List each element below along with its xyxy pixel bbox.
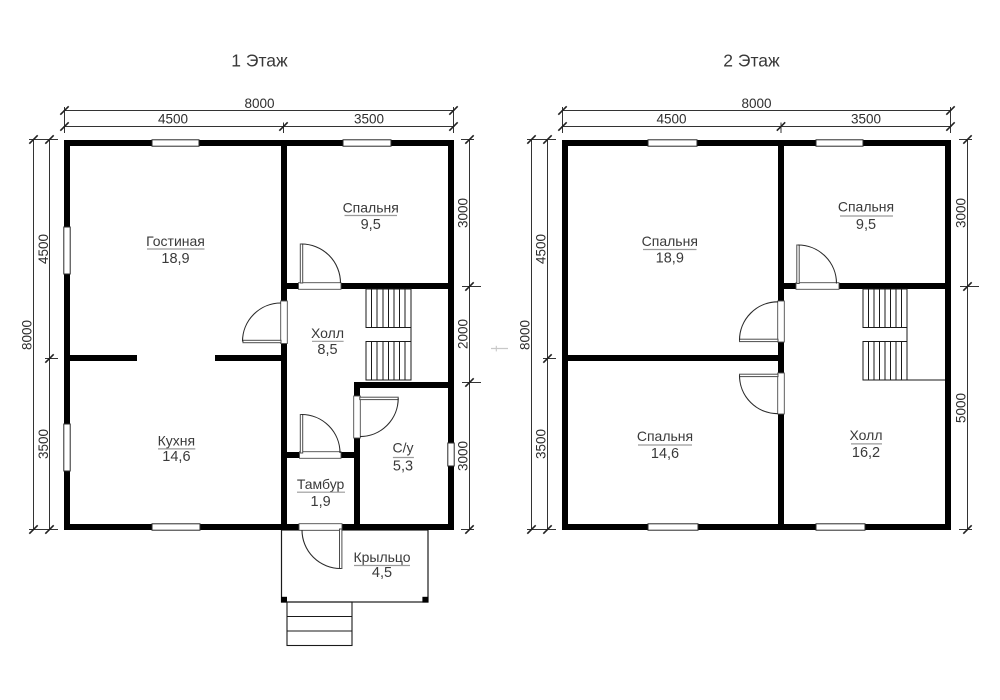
svg-text:5,3: 5,3 bbox=[393, 458, 413, 474]
svg-text:3500: 3500 bbox=[534, 429, 549, 459]
svg-text:1,9: 1,9 bbox=[311, 494, 331, 510]
svg-text:Холл: Холл bbox=[311, 325, 344, 341]
svg-text:3500: 3500 bbox=[354, 112, 384, 127]
svg-text:Спальня: Спальня bbox=[637, 428, 693, 444]
svg-text:14,6: 14,6 bbox=[651, 446, 679, 462]
svg-text:4500: 4500 bbox=[36, 234, 51, 264]
svg-text:3500: 3500 bbox=[851, 112, 881, 127]
svg-text:16,2: 16,2 bbox=[852, 445, 880, 461]
svg-text:2000: 2000 bbox=[456, 319, 471, 349]
svg-text:4500: 4500 bbox=[534, 234, 549, 264]
svg-text:9,5: 9,5 bbox=[361, 217, 381, 233]
svg-text:18,9: 18,9 bbox=[161, 251, 189, 267]
svg-text:3000: 3000 bbox=[456, 198, 471, 228]
svg-text:Гостиная: Гостиная bbox=[146, 233, 205, 249]
svg-text:1 Этаж: 1 Этаж bbox=[231, 51, 288, 71]
svg-text:4500: 4500 bbox=[158, 112, 188, 127]
svg-text:8000: 8000 bbox=[518, 320, 533, 350]
svg-text:18,9: 18,9 bbox=[656, 251, 684, 267]
svg-text:3500: 3500 bbox=[36, 429, 51, 459]
svg-text:С/у: С/у bbox=[393, 439, 414, 455]
svg-text:Холл: Холл bbox=[850, 427, 883, 443]
svg-text:4500: 4500 bbox=[656, 112, 686, 127]
svg-text:8000: 8000 bbox=[741, 96, 771, 111]
svg-text:9,5: 9,5 bbox=[856, 217, 876, 233]
svg-text:8,5: 8,5 bbox=[317, 342, 337, 358]
svg-text:8000: 8000 bbox=[244, 96, 274, 111]
svg-text:3000: 3000 bbox=[456, 441, 471, 471]
svg-text:Кухня: Кухня bbox=[158, 432, 195, 448]
svg-text:4,5: 4,5 bbox=[372, 565, 392, 581]
svg-text:Тамбур: Тамбур bbox=[297, 476, 345, 492]
svg-text:8000: 8000 bbox=[20, 320, 35, 350]
svg-text:Спальня: Спальня bbox=[343, 200, 399, 216]
svg-text:Спальня: Спальня bbox=[838, 199, 894, 215]
svg-text:3000: 3000 bbox=[954, 198, 969, 228]
svg-text:2 Этаж: 2 Этаж bbox=[723, 51, 780, 71]
svg-text:14,6: 14,6 bbox=[162, 449, 190, 465]
svg-text:Крыльцо: Крыльцо bbox=[353, 549, 410, 565]
svg-text:5000: 5000 bbox=[954, 393, 969, 423]
svg-text:Спальня: Спальня bbox=[642, 233, 698, 249]
